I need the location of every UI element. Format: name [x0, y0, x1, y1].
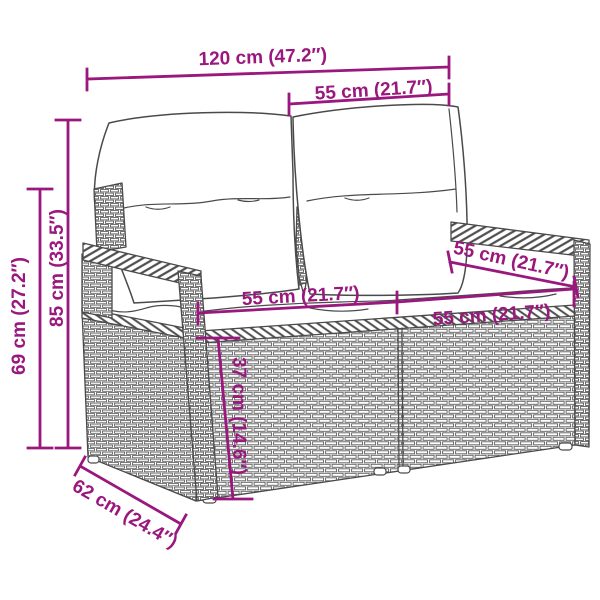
- diagram-svg: 120 cm (47.2″) 55 cm (21.7″) 85 cm (33.5…: [0, 0, 600, 600]
- dimension-overall-height: 85 cm (33.5″): [47, 120, 80, 448]
- dimension-diagram: 120 cm (47.2″) 55 cm (21.7″) 85 cm (33.5…: [0, 0, 600, 600]
- dimension-armrest-height: 69 cm (27.2″): [9, 189, 52, 448]
- foot: [88, 456, 99, 463]
- dimension-label: 120 cm (47.2″): [198, 45, 327, 70]
- foot: [374, 468, 386, 475]
- foot: [398, 466, 410, 473]
- dimension-label: 55 cm (21.7″): [314, 76, 433, 104]
- foot: [559, 443, 572, 450]
- right-arm-front-post: [574, 240, 590, 447]
- dimension-label: 85 cm (33.5″): [47, 209, 68, 327]
- base-left-face: [82, 310, 200, 501]
- back-cushion-right-body: [293, 104, 467, 295]
- back-cushion-right: [293, 104, 467, 295]
- dimension-label: 69 cm (27.2″): [9, 257, 30, 375]
- dimension-label: 37 cm (14.6″): [228, 357, 249, 475]
- left-arm-back-post: [94, 183, 126, 252]
